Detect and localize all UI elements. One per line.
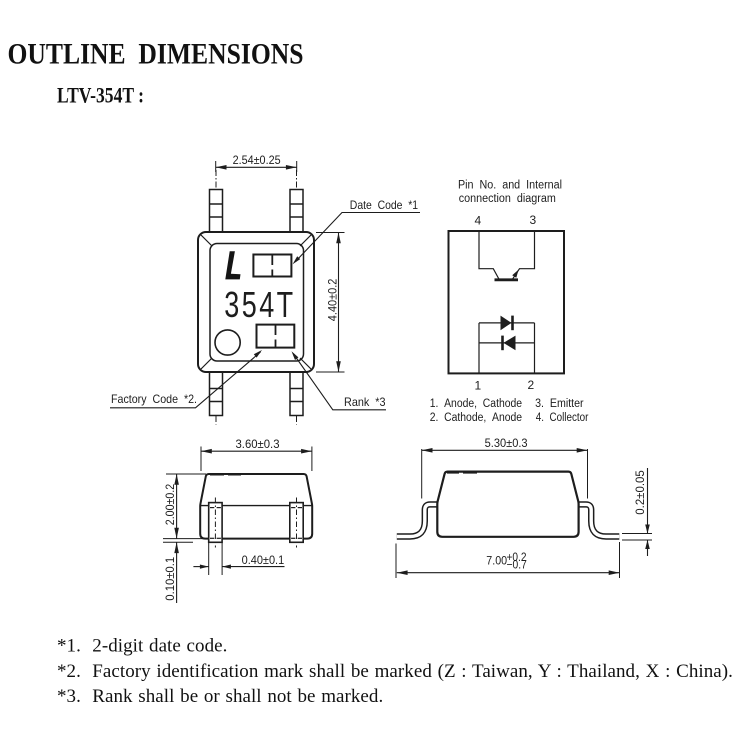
- svg-text:OUTLINE DIMENSIONS: OUTLINE DIMENSIONS: [8, 38, 304, 71]
- svg-text:0.40±0.1: 0.40±0.1: [242, 553, 285, 567]
- svg-text:3: 3: [530, 213, 537, 227]
- svg-text:4. Collector: 4. Collector: [536, 412, 589, 424]
- svg-text:2.54±0.25: 2.54±0.25: [233, 153, 281, 167]
- svg-text:4: 4: [475, 214, 482, 228]
- svg-text:*3. Rank shall be or shall no: *3. Rank shall be or shall not be marked…: [57, 686, 383, 707]
- svg-text:*2. Factory identification ma: *2. Factory identification mark shall be…: [57, 661, 733, 682]
- svg-text:3.60±0.3: 3.60±0.3: [236, 437, 280, 451]
- svg-text:2. Cathode, Anode: 2. Cathode, Anode: [430, 412, 522, 424]
- svg-text:2.00±0.2: 2.00±0.2: [163, 484, 177, 526]
- svg-text:connection diagram: connection diagram: [459, 193, 556, 205]
- svg-text:Factory Code *2.: Factory Code *2.: [111, 392, 197, 406]
- svg-text:354T: 354T: [224, 284, 295, 325]
- svg-text:Pin No. and Internal: Pin No. and Internal: [458, 180, 562, 192]
- svg-text:4.40±0.2: 4.40±0.2: [325, 278, 339, 321]
- svg-text:Date Code *1: Date Code *1: [350, 198, 419, 212]
- svg-text:Rank *3: Rank *3: [344, 395, 386, 409]
- svg-text:LTV-354T :: LTV-354T :: [57, 83, 144, 108]
- svg-text:1: 1: [475, 379, 482, 393]
- svg-text:*1. 2-digit date code.: *1. 2-digit date code.: [57, 636, 227, 657]
- svg-text:5.30±0.3: 5.30±0.3: [485, 436, 528, 450]
- svg-text:0.2±0.05: 0.2±0.05: [633, 470, 647, 515]
- svg-text:3. Emitter: 3. Emitter: [535, 398, 584, 410]
- svg-text:2: 2: [528, 378, 535, 392]
- svg-text:−0.7: −0.7: [507, 558, 528, 572]
- svg-text:1. Anode, Cathode: 1. Anode, Cathode: [430, 398, 522, 410]
- svg-text:7.00: 7.00: [486, 554, 507, 568]
- svg-text:0.10±0.1: 0.10±0.1: [163, 557, 177, 601]
